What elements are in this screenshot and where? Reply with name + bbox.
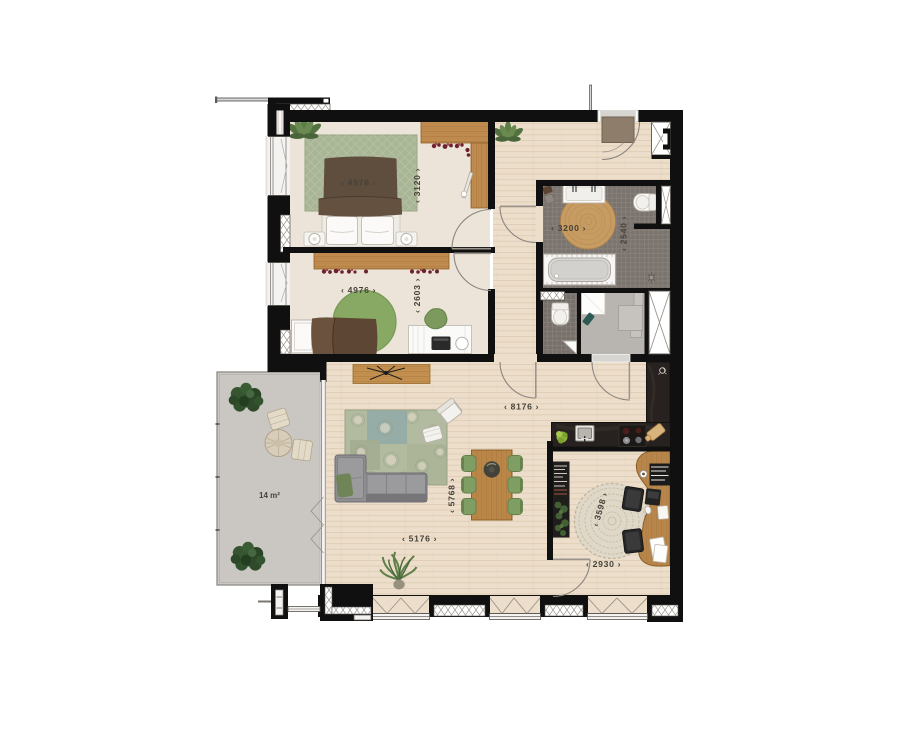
svg-text:‹ 4976 ›: ‹ 4976 ›: [341, 285, 376, 295]
svg-text:‹ 8176 ›: ‹ 8176 ›: [504, 402, 539, 412]
svg-text:‹ 5176 ›: ‹ 5176 ›: [402, 534, 437, 544]
svg-text:‹ 4976 ›: ‹ 4976 ›: [341, 178, 376, 188]
svg-text:‹ 3200 ›: ‹ 3200 ›: [551, 223, 586, 233]
svg-text:‹ 3120 ›: ‹ 3120 ›: [412, 168, 422, 203]
svg-text:14 m²: 14 m²: [259, 491, 280, 500]
svg-text:‹ 2603 ›: ‹ 2603 ›: [412, 278, 422, 313]
svg-text:‹ 2540 ›: ‹ 2540 ›: [619, 216, 629, 251]
svg-text:‹ 2930 ›: ‹ 2930 ›: [586, 559, 621, 569]
svg-text:‹ 5768 ›: ‹ 5768 ›: [447, 478, 457, 513]
